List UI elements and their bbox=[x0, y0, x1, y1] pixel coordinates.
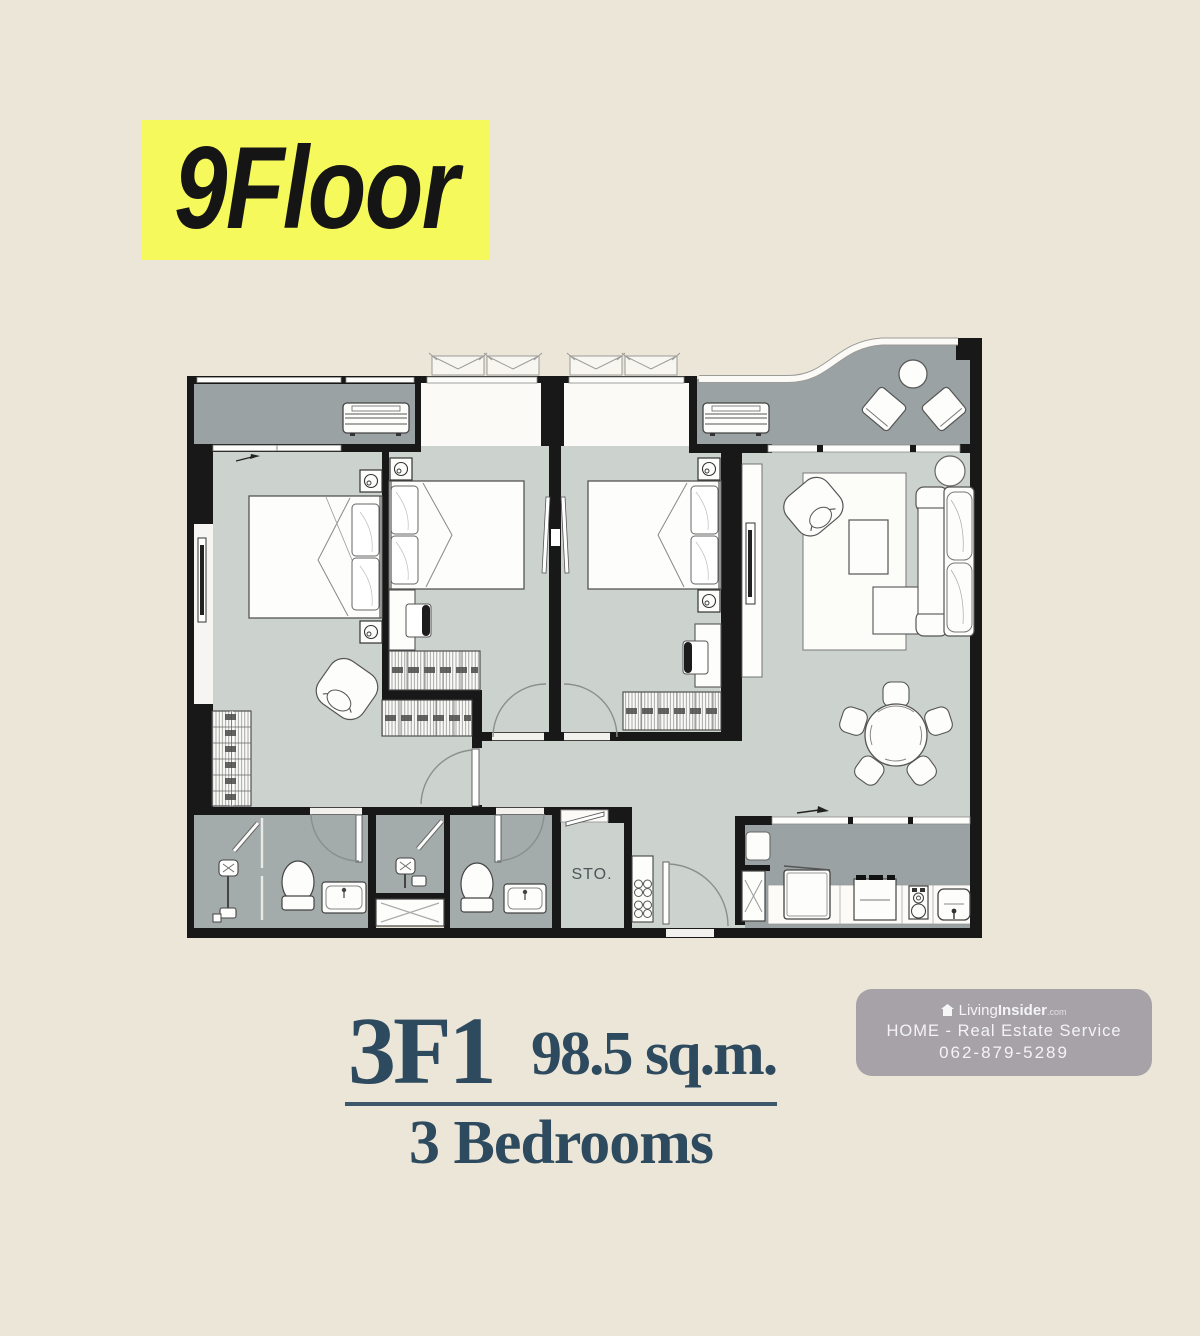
svg-text:STO.: STO. bbox=[571, 866, 612, 883]
